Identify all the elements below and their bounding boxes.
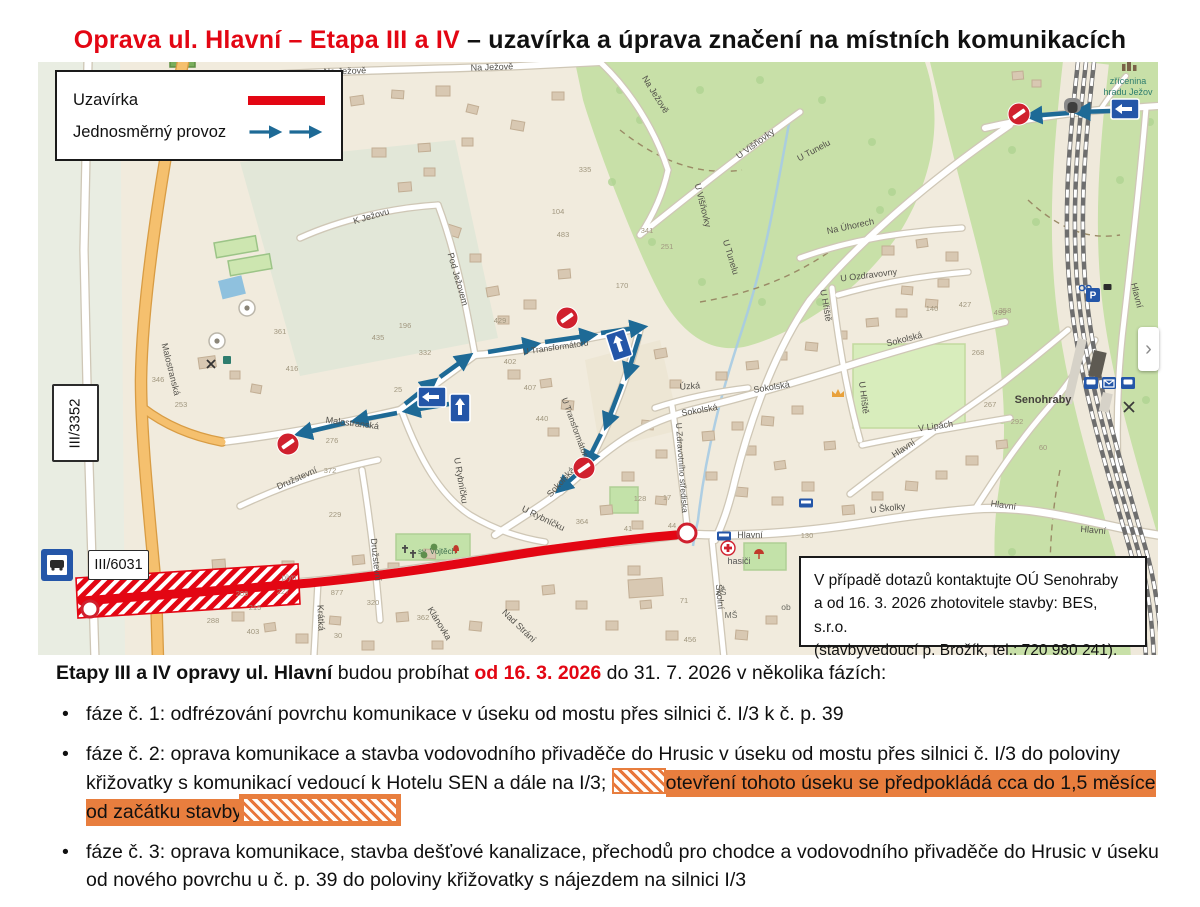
house-number: 17 bbox=[663, 493, 671, 502]
building bbox=[391, 90, 404, 99]
house-number: 362 bbox=[417, 613, 430, 622]
building bbox=[946, 252, 958, 261]
phase-bullet: fáze č. 3: oprava komunikace, stavba deš… bbox=[56, 838, 1160, 894]
house-number: 30 bbox=[334, 631, 342, 640]
phase-bullet: fáze č. 1: odfrézování povrchu komunikac… bbox=[56, 700, 1160, 728]
building bbox=[842, 505, 855, 515]
bus-icon bbox=[799, 499, 813, 508]
building bbox=[350, 95, 364, 106]
tree-icon bbox=[421, 552, 428, 559]
notes-text-segment: fáze č. 3: oprava komunikace, stavba deš… bbox=[86, 841, 1159, 891]
phase-bullet: fáze č. 2: oprava komunikace a stavba vo… bbox=[56, 740, 1160, 826]
page-title: Oprava ul. Hlavní – Etapa III a IV – uza… bbox=[0, 26, 1200, 55]
house-number: 229 bbox=[329, 510, 342, 519]
closure-line-swatch bbox=[248, 96, 325, 105]
building bbox=[656, 450, 667, 458]
house-number: 403 bbox=[247, 627, 260, 636]
street-label: Krátká bbox=[315, 605, 326, 632]
building bbox=[628, 566, 640, 575]
house-number: 402 bbox=[504, 357, 517, 366]
building bbox=[264, 622, 276, 631]
house-number: 332 bbox=[419, 348, 432, 357]
building bbox=[1012, 71, 1024, 80]
building bbox=[622, 472, 634, 481]
house-number: 276 bbox=[326, 436, 339, 445]
building bbox=[396, 612, 409, 622]
house-number: 292 bbox=[1011, 417, 1024, 426]
building bbox=[706, 472, 717, 480]
house-number: 429 bbox=[494, 316, 507, 325]
notes-text-segment: fáze č. 1: odfrézování povrchu komunikac… bbox=[86, 703, 844, 725]
building bbox=[774, 460, 786, 469]
building bbox=[432, 641, 443, 649]
tree-dot bbox=[758, 298, 766, 306]
house-number: 25 bbox=[394, 385, 402, 394]
house-number: 456 bbox=[684, 635, 697, 644]
poi-label: hradu Ježov bbox=[1103, 87, 1153, 97]
building bbox=[540, 378, 552, 387]
oneway-street-sign-icon bbox=[1111, 99, 1139, 119]
building bbox=[824, 441, 836, 450]
notes-section: Etapy III a IV opravy ul. Hlavní budou p… bbox=[56, 659, 1160, 907]
tree-dot bbox=[1032, 218, 1040, 226]
legend-row-closure: Uzavírka bbox=[73, 84, 325, 116]
tree-dot bbox=[698, 278, 706, 286]
building bbox=[251, 384, 262, 394]
building bbox=[510, 120, 524, 131]
house-number: 435 bbox=[372, 333, 385, 342]
cup-icon bbox=[1104, 284, 1112, 290]
building bbox=[805, 342, 818, 351]
building bbox=[732, 422, 743, 430]
house-number: 341 bbox=[641, 226, 654, 235]
house-number: 227 bbox=[277, 587, 290, 596]
building bbox=[735, 630, 748, 640]
title-red-part: Oprava ul. Hlavní – Etapa III a IV bbox=[74, 26, 460, 54]
building bbox=[576, 601, 587, 609]
tree-dot bbox=[1008, 146, 1016, 154]
tree-dot bbox=[648, 238, 656, 246]
building bbox=[916, 238, 928, 247]
bus-icon bbox=[717, 532, 731, 541]
building bbox=[212, 559, 226, 569]
building bbox=[640, 600, 652, 609]
building bbox=[716, 372, 727, 380]
closure-endpoint bbox=[82, 601, 98, 617]
poi-label: ZŠ bbox=[716, 587, 727, 597]
house-number: 251 bbox=[661, 242, 674, 251]
house-number: 483 bbox=[557, 230, 570, 239]
building bbox=[628, 578, 663, 598]
building bbox=[766, 616, 777, 624]
parking-letter: P bbox=[1090, 291, 1097, 302]
building bbox=[558, 269, 571, 279]
notes-text-segment: od 16. 3. 2026 bbox=[474, 662, 601, 684]
building bbox=[746, 361, 759, 370]
tree-dot bbox=[1142, 396, 1150, 404]
oneway-arrow bbox=[1029, 113, 1069, 116]
legend-oneway-label: Jednosměrný provoz bbox=[73, 123, 248, 142]
legend-box: Uzavírka Jednosměrný provoz bbox=[55, 70, 343, 161]
firecross-icon bbox=[721, 541, 735, 555]
house-number: 358 bbox=[999, 306, 1012, 315]
house-number: 346 bbox=[152, 375, 165, 384]
contact-line-1: V případě dotazů kontaktujte OÚ Senohrab… bbox=[814, 569, 1132, 592]
house-number: 104 bbox=[552, 207, 565, 216]
house-number: 440 bbox=[536, 414, 549, 423]
tree-dot bbox=[696, 86, 704, 94]
house-number: 427 bbox=[959, 300, 972, 309]
house-number: 170 bbox=[616, 281, 629, 290]
contact-box: V případě dotazů kontaktujte OÚ Senohrab… bbox=[799, 556, 1147, 647]
building bbox=[802, 482, 814, 491]
poi-label: Senohraby bbox=[1015, 394, 1073, 406]
poi-label: ob bbox=[781, 602, 791, 612]
building bbox=[936, 471, 947, 479]
chevron-right-icon: › bbox=[1145, 338, 1152, 361]
street-label: Hlavní bbox=[737, 530, 763, 540]
building bbox=[548, 428, 559, 436]
building bbox=[938, 279, 949, 287]
bus-stop-icon bbox=[41, 549, 73, 581]
no-entry-sign-icon bbox=[573, 457, 595, 479]
building bbox=[508, 370, 520, 379]
building bbox=[606, 621, 618, 630]
building bbox=[896, 309, 907, 317]
house-number: 253 bbox=[175, 400, 188, 409]
building bbox=[372, 148, 386, 157]
tree-dot bbox=[876, 206, 884, 214]
building bbox=[792, 406, 803, 414]
building bbox=[654, 348, 667, 359]
house-number: 268 bbox=[972, 348, 985, 357]
mail-icon bbox=[1102, 377, 1116, 389]
house-number: 196 bbox=[399, 321, 412, 330]
tree-dot bbox=[818, 96, 826, 104]
tree-icon bbox=[431, 544, 438, 551]
house-number: 288 bbox=[207, 616, 220, 625]
notes-text-segment: Etapy III a IV opravy ul. Hlavní bbox=[56, 662, 332, 684]
building bbox=[866, 318, 879, 327]
house-number: 140 bbox=[926, 304, 939, 313]
building bbox=[761, 416, 774, 426]
house-number: 130 bbox=[801, 531, 814, 540]
building bbox=[772, 497, 783, 505]
building bbox=[352, 555, 365, 565]
building bbox=[418, 143, 431, 152]
legend-closure-label: Uzavírka bbox=[73, 91, 248, 110]
building bbox=[524, 300, 536, 309]
building bbox=[424, 168, 435, 176]
notes-intro: Etapy III a IV opravy ul. Hlavní budou p… bbox=[56, 659, 1160, 687]
building bbox=[966, 456, 978, 465]
building bbox=[1032, 80, 1041, 87]
station-sq-icon bbox=[1121, 377, 1135, 389]
building bbox=[552, 92, 564, 100]
house-number: 71 bbox=[680, 596, 688, 605]
no-entry-sign-icon bbox=[1008, 103, 1030, 125]
building bbox=[632, 521, 643, 529]
building bbox=[470, 254, 481, 262]
house-number: 877 bbox=[331, 588, 344, 597]
building bbox=[600, 505, 613, 515]
house-number: 364 bbox=[576, 517, 589, 526]
house-number: 215 bbox=[249, 603, 262, 612]
building bbox=[436, 86, 450, 96]
house-number: 335 bbox=[579, 165, 592, 174]
notes-bullets: fáze č. 1: odfrézování povrchu komunikac… bbox=[56, 700, 1160, 894]
building bbox=[486, 286, 499, 297]
house-number: 407 bbox=[524, 383, 537, 392]
poi-icon bbox=[239, 300, 255, 316]
house-number: 128 bbox=[634, 494, 647, 503]
no-entry-sign-icon bbox=[277, 433, 299, 455]
no-entry-sign-icon bbox=[556, 307, 578, 329]
building bbox=[230, 371, 240, 379]
oneway-arrows-icon bbox=[248, 123, 325, 141]
house-number: 361 bbox=[274, 327, 287, 336]
oneway-street-sign-icon bbox=[450, 394, 470, 422]
road-shield-III-3352: III/3352 bbox=[52, 384, 99, 462]
tree-dot bbox=[756, 76, 764, 84]
poi-label: zřícenina bbox=[1110, 76, 1147, 86]
notes-text-segment: do 31. 7. 2026 v několika fázích: bbox=[601, 662, 886, 684]
building bbox=[232, 612, 244, 621]
tree-dot bbox=[888, 188, 896, 196]
closure-endpoint bbox=[678, 524, 696, 542]
house-number: 41 bbox=[624, 524, 632, 533]
oneway-arrow bbox=[1077, 111, 1111, 112]
oneway-street-sign-icon bbox=[418, 387, 446, 407]
building bbox=[542, 585, 555, 595]
building bbox=[398, 182, 412, 192]
poi-label: plyn bbox=[282, 573, 297, 582]
building bbox=[702, 431, 715, 441]
station-sq-icon bbox=[1084, 377, 1098, 389]
house-number: 60 bbox=[1039, 443, 1047, 452]
tree-dot bbox=[608, 178, 616, 186]
house-number: 209 bbox=[236, 589, 249, 598]
road-shield-III-6031: III/6031 bbox=[88, 550, 149, 580]
building bbox=[362, 641, 374, 650]
building bbox=[872, 492, 883, 500]
contact-line-2: a od 16. 3. 2026 zhotovitele stavby: BES… bbox=[814, 592, 1132, 639]
hatched-road-swatch bbox=[242, 797, 398, 823]
title-black-part: – uzavírka a úprava značení na místních … bbox=[460, 26, 1126, 54]
house-number: 44 bbox=[668, 521, 676, 530]
street-label: Úzká bbox=[679, 380, 700, 391]
building bbox=[329, 616, 341, 625]
poi-label: hasiči bbox=[727, 556, 750, 566]
building bbox=[996, 440, 1008, 449]
expand-chevron-button[interactable]: › bbox=[1138, 327, 1159, 371]
legend-row-oneway: Jednosměrný provoz bbox=[73, 116, 325, 148]
building bbox=[666, 631, 678, 640]
tree-dot bbox=[1008, 548, 1016, 556]
house-number: 267 bbox=[984, 400, 997, 409]
tree-dot bbox=[1116, 176, 1124, 184]
tunnel-icon bbox=[1064, 98, 1081, 113]
house-number: 416 bbox=[286, 364, 299, 373]
building bbox=[462, 138, 473, 146]
poi-icon bbox=[209, 333, 225, 349]
info-icon bbox=[223, 356, 231, 364]
street-label: Na Ježově bbox=[470, 62, 513, 73]
poi-label: MŠ bbox=[725, 610, 738, 620]
building bbox=[296, 634, 308, 643]
tree-dot bbox=[868, 138, 876, 146]
building bbox=[901, 286, 913, 295]
house-number: 320 bbox=[367, 598, 380, 607]
building bbox=[905, 481, 918, 491]
house-number: 372 bbox=[324, 466, 337, 475]
hatched-road-swatch bbox=[612, 768, 666, 794]
building bbox=[882, 246, 894, 255]
notes-text-segment: budou probíhat bbox=[332, 662, 474, 684]
building bbox=[469, 621, 482, 631]
